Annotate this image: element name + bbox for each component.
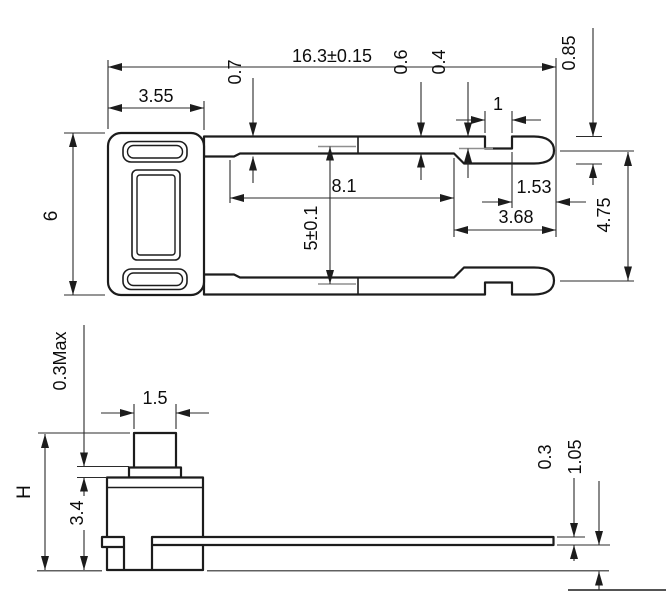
- dim-pin-pitch-label: 5±0.1: [301, 206, 321, 251]
- drawing-canvas: 16.3±0.15 3.55 6 0.7 0.6 0.4 1 0.85 8.1 …: [0, 0, 666, 601]
- dim-body-width-label: 3.55: [138, 86, 173, 106]
- dim-notch-to-tip-label: 1.53: [516, 177, 551, 197]
- side-view-labels: 0.3Max 1.5 H 3.4 0.3 1.05: [14, 331, 585, 525]
- side-view: 0.3Max 1.5 H 3.4 0.3 1.05: [14, 325, 666, 590]
- dim-overall-height-label: H: [14, 485, 35, 499]
- dim-button-width-label: 1.5: [142, 388, 167, 408]
- dim-notch-width-label: 1: [493, 94, 503, 114]
- technical-drawing: 16.3±0.15 3.55 6 0.7 0.6 0.4 1 0.85 8.1 …: [0, 0, 666, 601]
- dim-pin-straight-label: 8.1: [331, 176, 356, 196]
- dim-terminal-thickness-label: 0.3: [535, 444, 555, 469]
- button-collar: [129, 468, 181, 478]
- dim-notch-depth-label: 0.4: [429, 49, 449, 74]
- dim-overall-length-label: 16.3±0.15: [292, 46, 372, 66]
- dim-pin-base-width-label: 0.7: [225, 59, 245, 84]
- upper-pin-outline: [204, 137, 554, 164]
- body-outline-side-view: [107, 478, 203, 571]
- left-terminal-stub: [102, 537, 124, 547]
- dim-tip-section-label: 3.68: [498, 207, 533, 227]
- dim-tip-pitch-label: 4.75: [594, 197, 614, 232]
- button-outline: [134, 433, 176, 468]
- terminal-strip: [152, 537, 554, 545]
- dim-body-height-label: 6: [41, 211, 62, 222]
- dim-tip-width-label: 0.85: [559, 35, 579, 70]
- dim-body-side-height-label: 3.4: [67, 500, 87, 525]
- dim-terminal-standoff-label: 1.05: [565, 439, 585, 474]
- dim-pin-mid-width-label: 0.6: [391, 49, 411, 74]
- lower-pin-outline: [204, 268, 554, 295]
- dim-flange-protrusion-label: 0.3Max: [50, 331, 70, 390]
- top-view: 16.3±0.15 3.55 6 0.7 0.6 0.4 1 0.85 8.1 …: [41, 28, 634, 295]
